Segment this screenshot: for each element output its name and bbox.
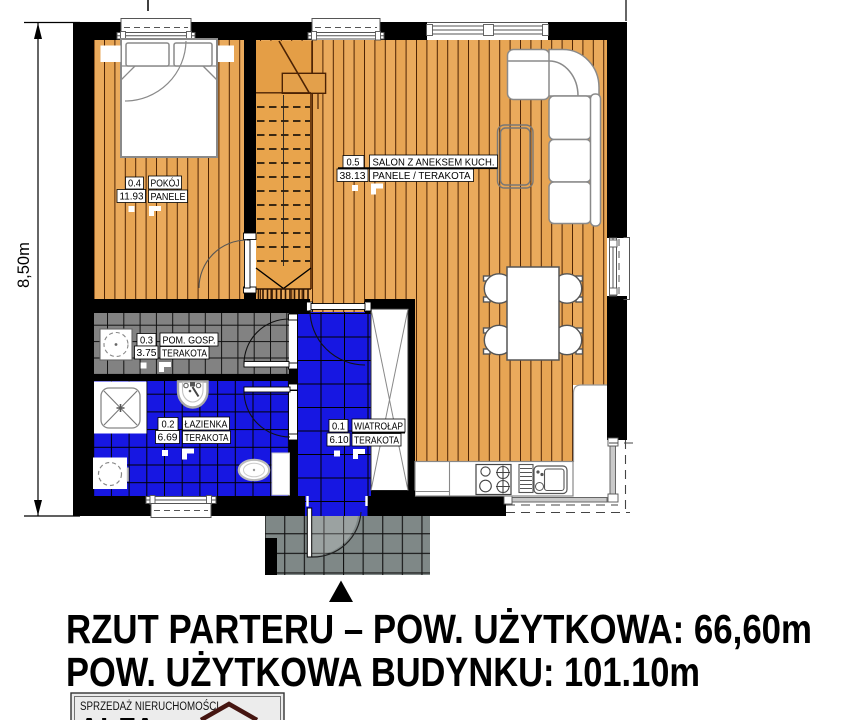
svg-text:6.69: 6.69 [158, 432, 178, 444]
svg-text:POM. GOSP.: POM. GOSP. [163, 335, 216, 347]
svg-text:ALFA: ALFA [79, 712, 156, 720]
svg-text:PANELE / TERAKOTA: PANELE / TERAKOTA [373, 170, 471, 182]
svg-text:ŁAZIENKA: ŁAZIENKA [185, 419, 228, 431]
svg-text:TERAKOTA: TERAKOTA [185, 432, 229, 444]
svg-text:RZUT PARTERU – POW. UŻYTKOWA:: RZUT PARTERU – POW. UŻYTKOWA: 66,60m [66, 606, 812, 652]
svg-text:38.13: 38.13 [340, 170, 366, 182]
svg-text:8,50m: 8,50m [15, 242, 33, 288]
svg-text:0.5: 0.5 [347, 157, 360, 169]
svg-text:SALON Z ANEKSEM KUCH.: SALON Z ANEKSEM KUCH. [373, 157, 495, 169]
svg-text:6.10: 6.10 [330, 434, 349, 446]
svg-text:POKÓJ: POKÓJ [151, 177, 180, 190]
svg-text:0.3: 0.3 [140, 335, 153, 347]
svg-text:0.4: 0.4 [128, 178, 141, 190]
svg-text:0.1: 0.1 [332, 421, 345, 433]
svg-text:TERAKOTA: TERAKOTA [354, 435, 399, 447]
svg-text:TERAKOTA: TERAKOTA [162, 348, 207, 360]
svg-text:3.75: 3.75 [137, 347, 157, 359]
svg-text:POW. UŻYTKOWA BUDYNKU: 101.10m: POW. UŻYTKOWA BUDYNKU: 101.10m [66, 649, 700, 695]
svg-text:0.2: 0.2 [162, 419, 175, 431]
svg-text:11.93: 11.93 [120, 191, 144, 203]
svg-text:PANELE: PANELE [151, 191, 186, 203]
svg-text:WIATROŁAP: WIATROŁAP [354, 421, 403, 433]
